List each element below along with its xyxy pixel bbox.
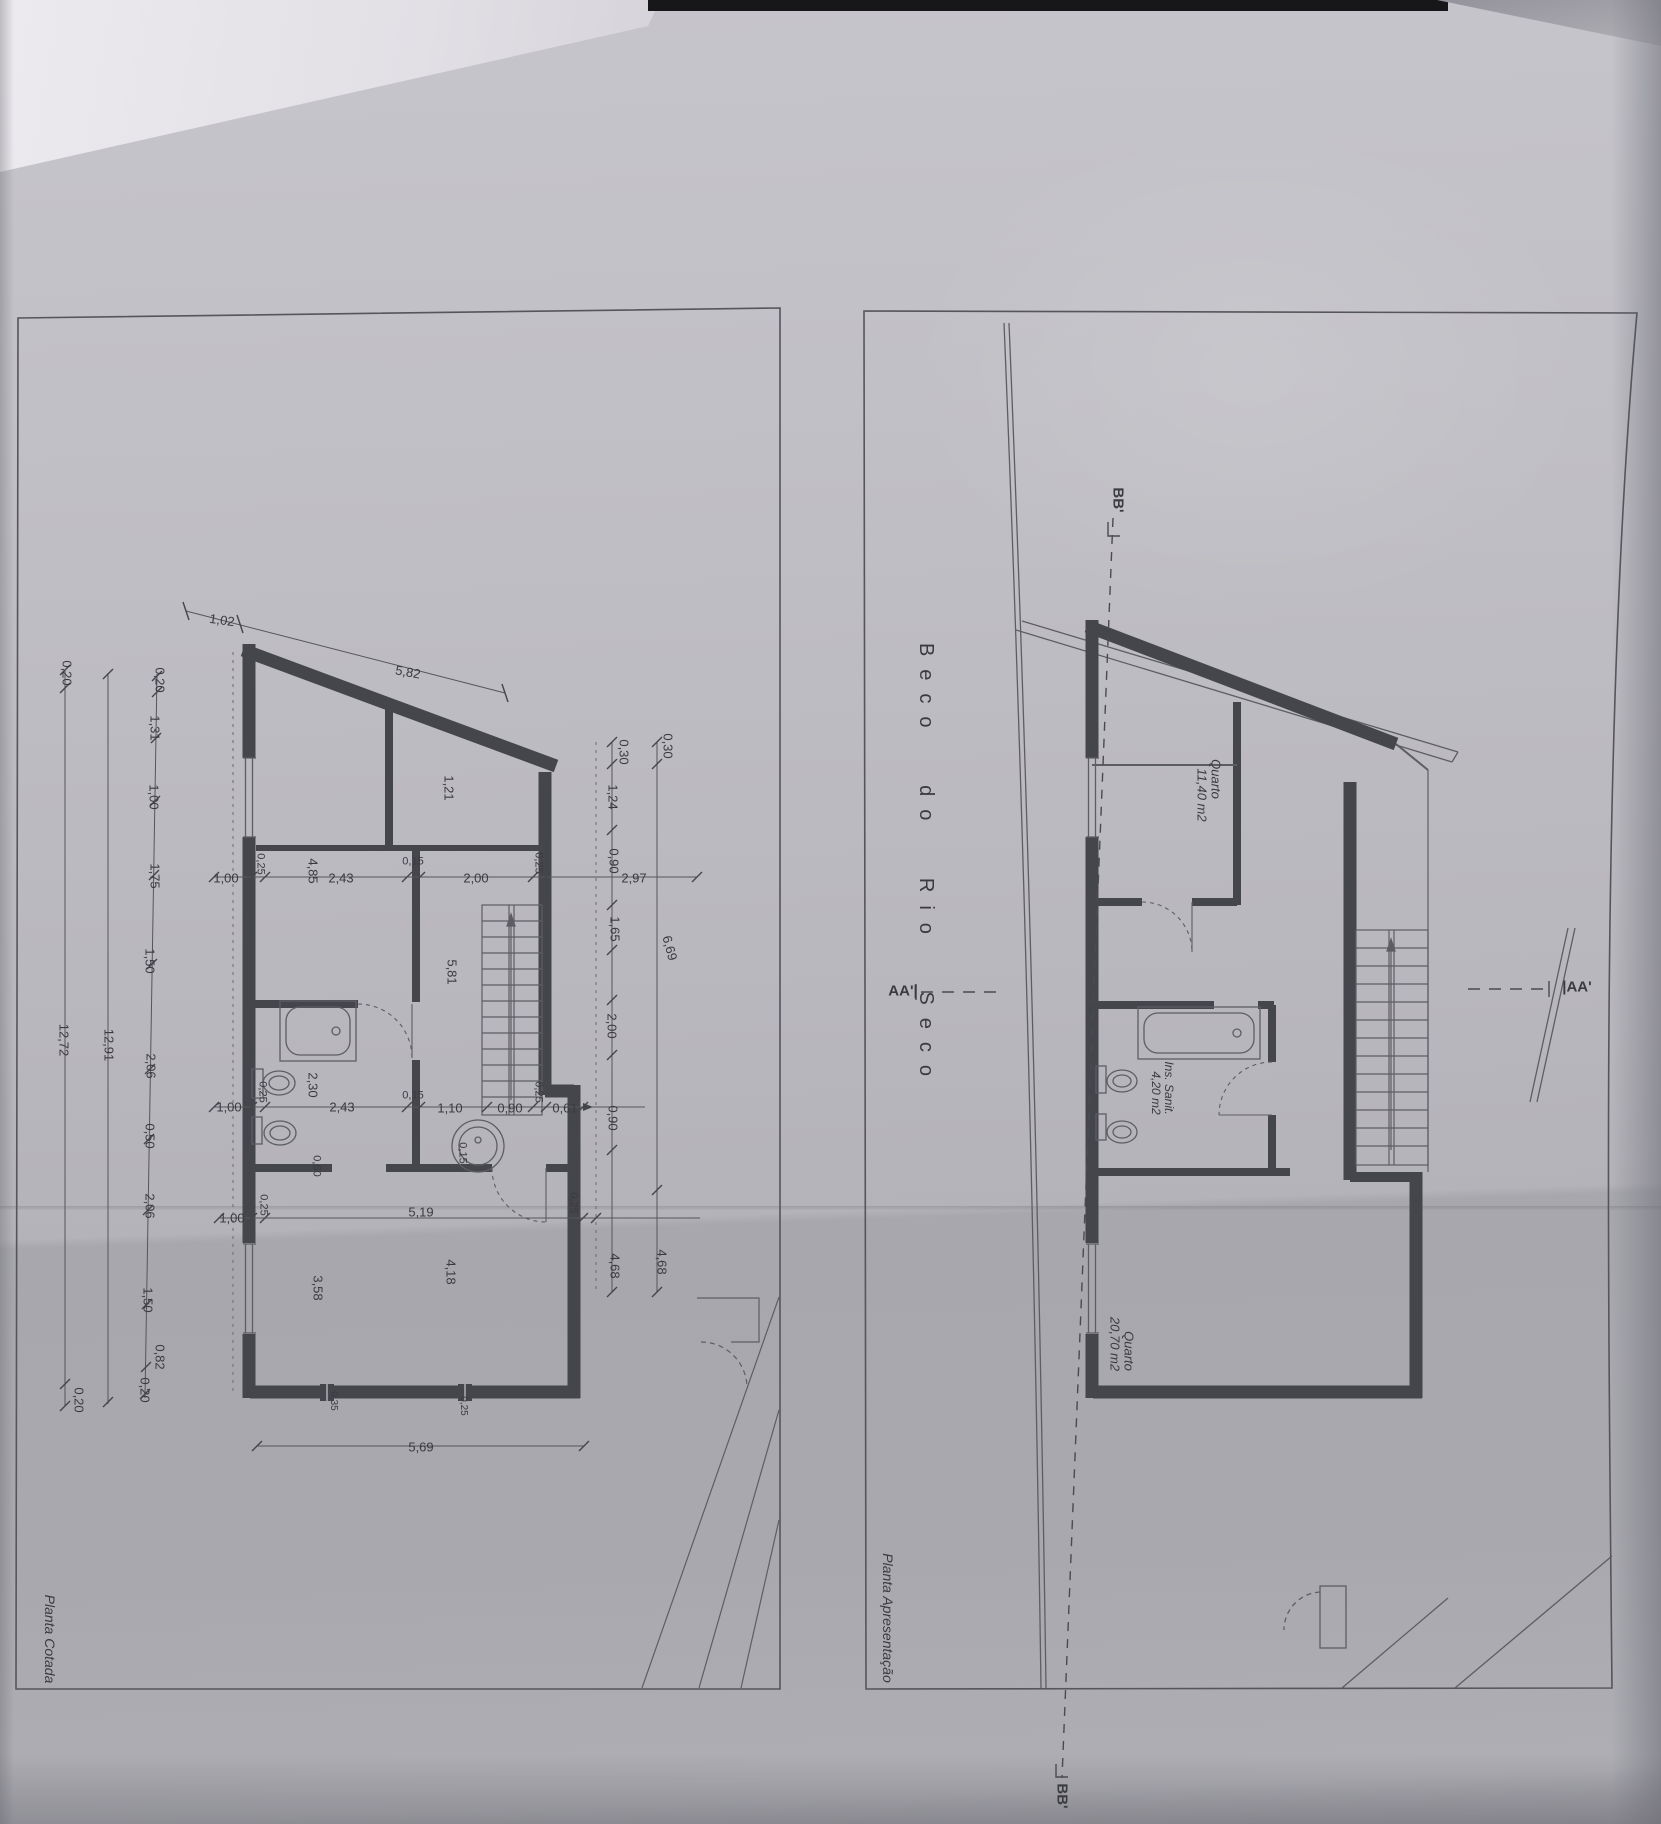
dimension-label: 0,20 — [61, 660, 74, 685]
section-marker-bb-bottom: BB' — [1055, 1783, 1070, 1808]
dimension-label: 4,68 — [609, 1253, 622, 1278]
right-panel-title: Planta Apresentação — [881, 1553, 895, 1682]
dimension-label: 5,81 — [446, 959, 459, 984]
dimension-label: 1,50 — [144, 948, 157, 973]
section-marker-aa-right: |AA' — [1562, 980, 1591, 995]
plan-linework — [0, 0, 1661, 1824]
dimension-label: 0,90 — [497, 1102, 522, 1115]
dimension-label: 0,15 — [402, 857, 423, 868]
room-area-quarto-2: 20,70 m2 — [1109, 1317, 1122, 1371]
dimension-label: 0,90 — [608, 848, 621, 873]
dimension-label: 1,00 — [216, 1101, 241, 1114]
dimension-label: 0,90 — [607, 1105, 620, 1130]
dimension-label: 4,85 — [307, 858, 320, 883]
dimension-label: 0,25 — [533, 1081, 544, 1102]
left-lot-lines — [642, 1297, 779, 1688]
dimension-label: 4,18 — [445, 1259, 458, 1284]
dimension-label: 0,25 — [533, 852, 544, 873]
dimension-label: 0,30 — [662, 733, 675, 758]
dimension-label: 0,25 — [458, 1396, 468, 1415]
right-plan-stairs — [1356, 770, 1428, 1172]
room-area-ins-sanit: 4,20 m2 — [1150, 1071, 1162, 1114]
dimension-label: 3,58 — [312, 1275, 325, 1300]
dimension-label: 0,15 — [457, 1142, 468, 1163]
right-plan-fixtures — [1096, 1007, 1260, 1143]
right-plan-doors — [1040, 902, 1272, 1332]
scanned-floor-plan-sheet: 1,025,820,2012,720,2012,910,201,311,001,… — [0, 0, 1661, 1824]
dimension-label: 5,19 — [408, 1206, 433, 1219]
dimension-label: 0,50 — [144, 1123, 157, 1148]
dimension-label: 0,30 — [618, 739, 631, 764]
section-marker-aa-left: AA'| — [888, 984, 917, 999]
left-plan-windows — [243, 758, 472, 1401]
dimension-label: 2,43 — [328, 872, 353, 885]
left-panel-title: Planta Cotada — [43, 1595, 57, 1684]
dimension-label: 0,20 — [73, 1387, 86, 1412]
room-area-quarto-1: 11,40 m2 — [1196, 768, 1209, 821]
dimension-label: 1,21 — [443, 775, 456, 800]
dimension-label: 2,43 — [329, 1101, 354, 1114]
dimension-label: 0,15 — [402, 1091, 423, 1102]
dimension-label: 2,06 — [144, 1193, 157, 1218]
dimension-label: 1,75 — [149, 863, 162, 888]
dimension-label: 1,00 — [219, 1212, 244, 1225]
dimension-label: 0,20 — [139, 1377, 152, 1402]
dimension-label: 1,00 — [213, 872, 238, 885]
room-label-quarto-2: Quarto — [1123, 1331, 1136, 1371]
dimension-label: 1,31 — [149, 715, 162, 740]
dimension-label: 0,25 — [255, 853, 266, 874]
dimension-label: 1,50 — [142, 1287, 155, 1312]
dimension-label: 0,82 — [154, 1344, 167, 1369]
street-name: Beco do Rio Seco — [916, 643, 936, 1089]
dimension-label: 2,00 — [463, 872, 488, 885]
dim-1-02: 1,02 — [209, 612, 236, 628]
section-lines — [916, 518, 1549, 1778]
dimension-label: 0,25 — [257, 1081, 268, 1102]
room-label-quarto-1: Quarto — [1210, 759, 1223, 799]
dimension-label: 2,00 — [606, 1013, 619, 1038]
dimension-label: 12,72 — [58, 1024, 71, 1057]
dimension-label: 0,61 — [552, 1102, 577, 1115]
dimension-label: 0,20 — [154, 667, 167, 692]
dimension-label: 2,97 — [621, 872, 646, 885]
dim-5-82: 5,82 — [394, 663, 421, 680]
dimension-label: 5,69 — [408, 1441, 433, 1454]
dimension-label: 1,00 — [148, 784, 161, 809]
dimension-label: 12,91 — [103, 1029, 116, 1062]
dimension-label: 2,06 — [145, 1053, 158, 1078]
dimension-label: 0,60 — [311, 1155, 322, 1176]
dimension-label: 0,25 — [568, 1192, 579, 1213]
dimension-label: 1,10 — [437, 1102, 462, 1115]
room-label-ins-sanit: Ins. Sanit. — [1163, 1061, 1175, 1114]
dimension-label: 1,24 — [607, 784, 620, 809]
dimension-label: 4,68 — [656, 1249, 669, 1274]
dimension-label: 0,25 — [258, 1194, 269, 1215]
dimension-label: 0,35 — [328, 1391, 338, 1410]
section-marker-bb-top: BB' — [1111, 487, 1126, 512]
dimension-label: 1,65 — [609, 916, 622, 941]
dimension-label: 2,30 — [307, 1072, 320, 1097]
